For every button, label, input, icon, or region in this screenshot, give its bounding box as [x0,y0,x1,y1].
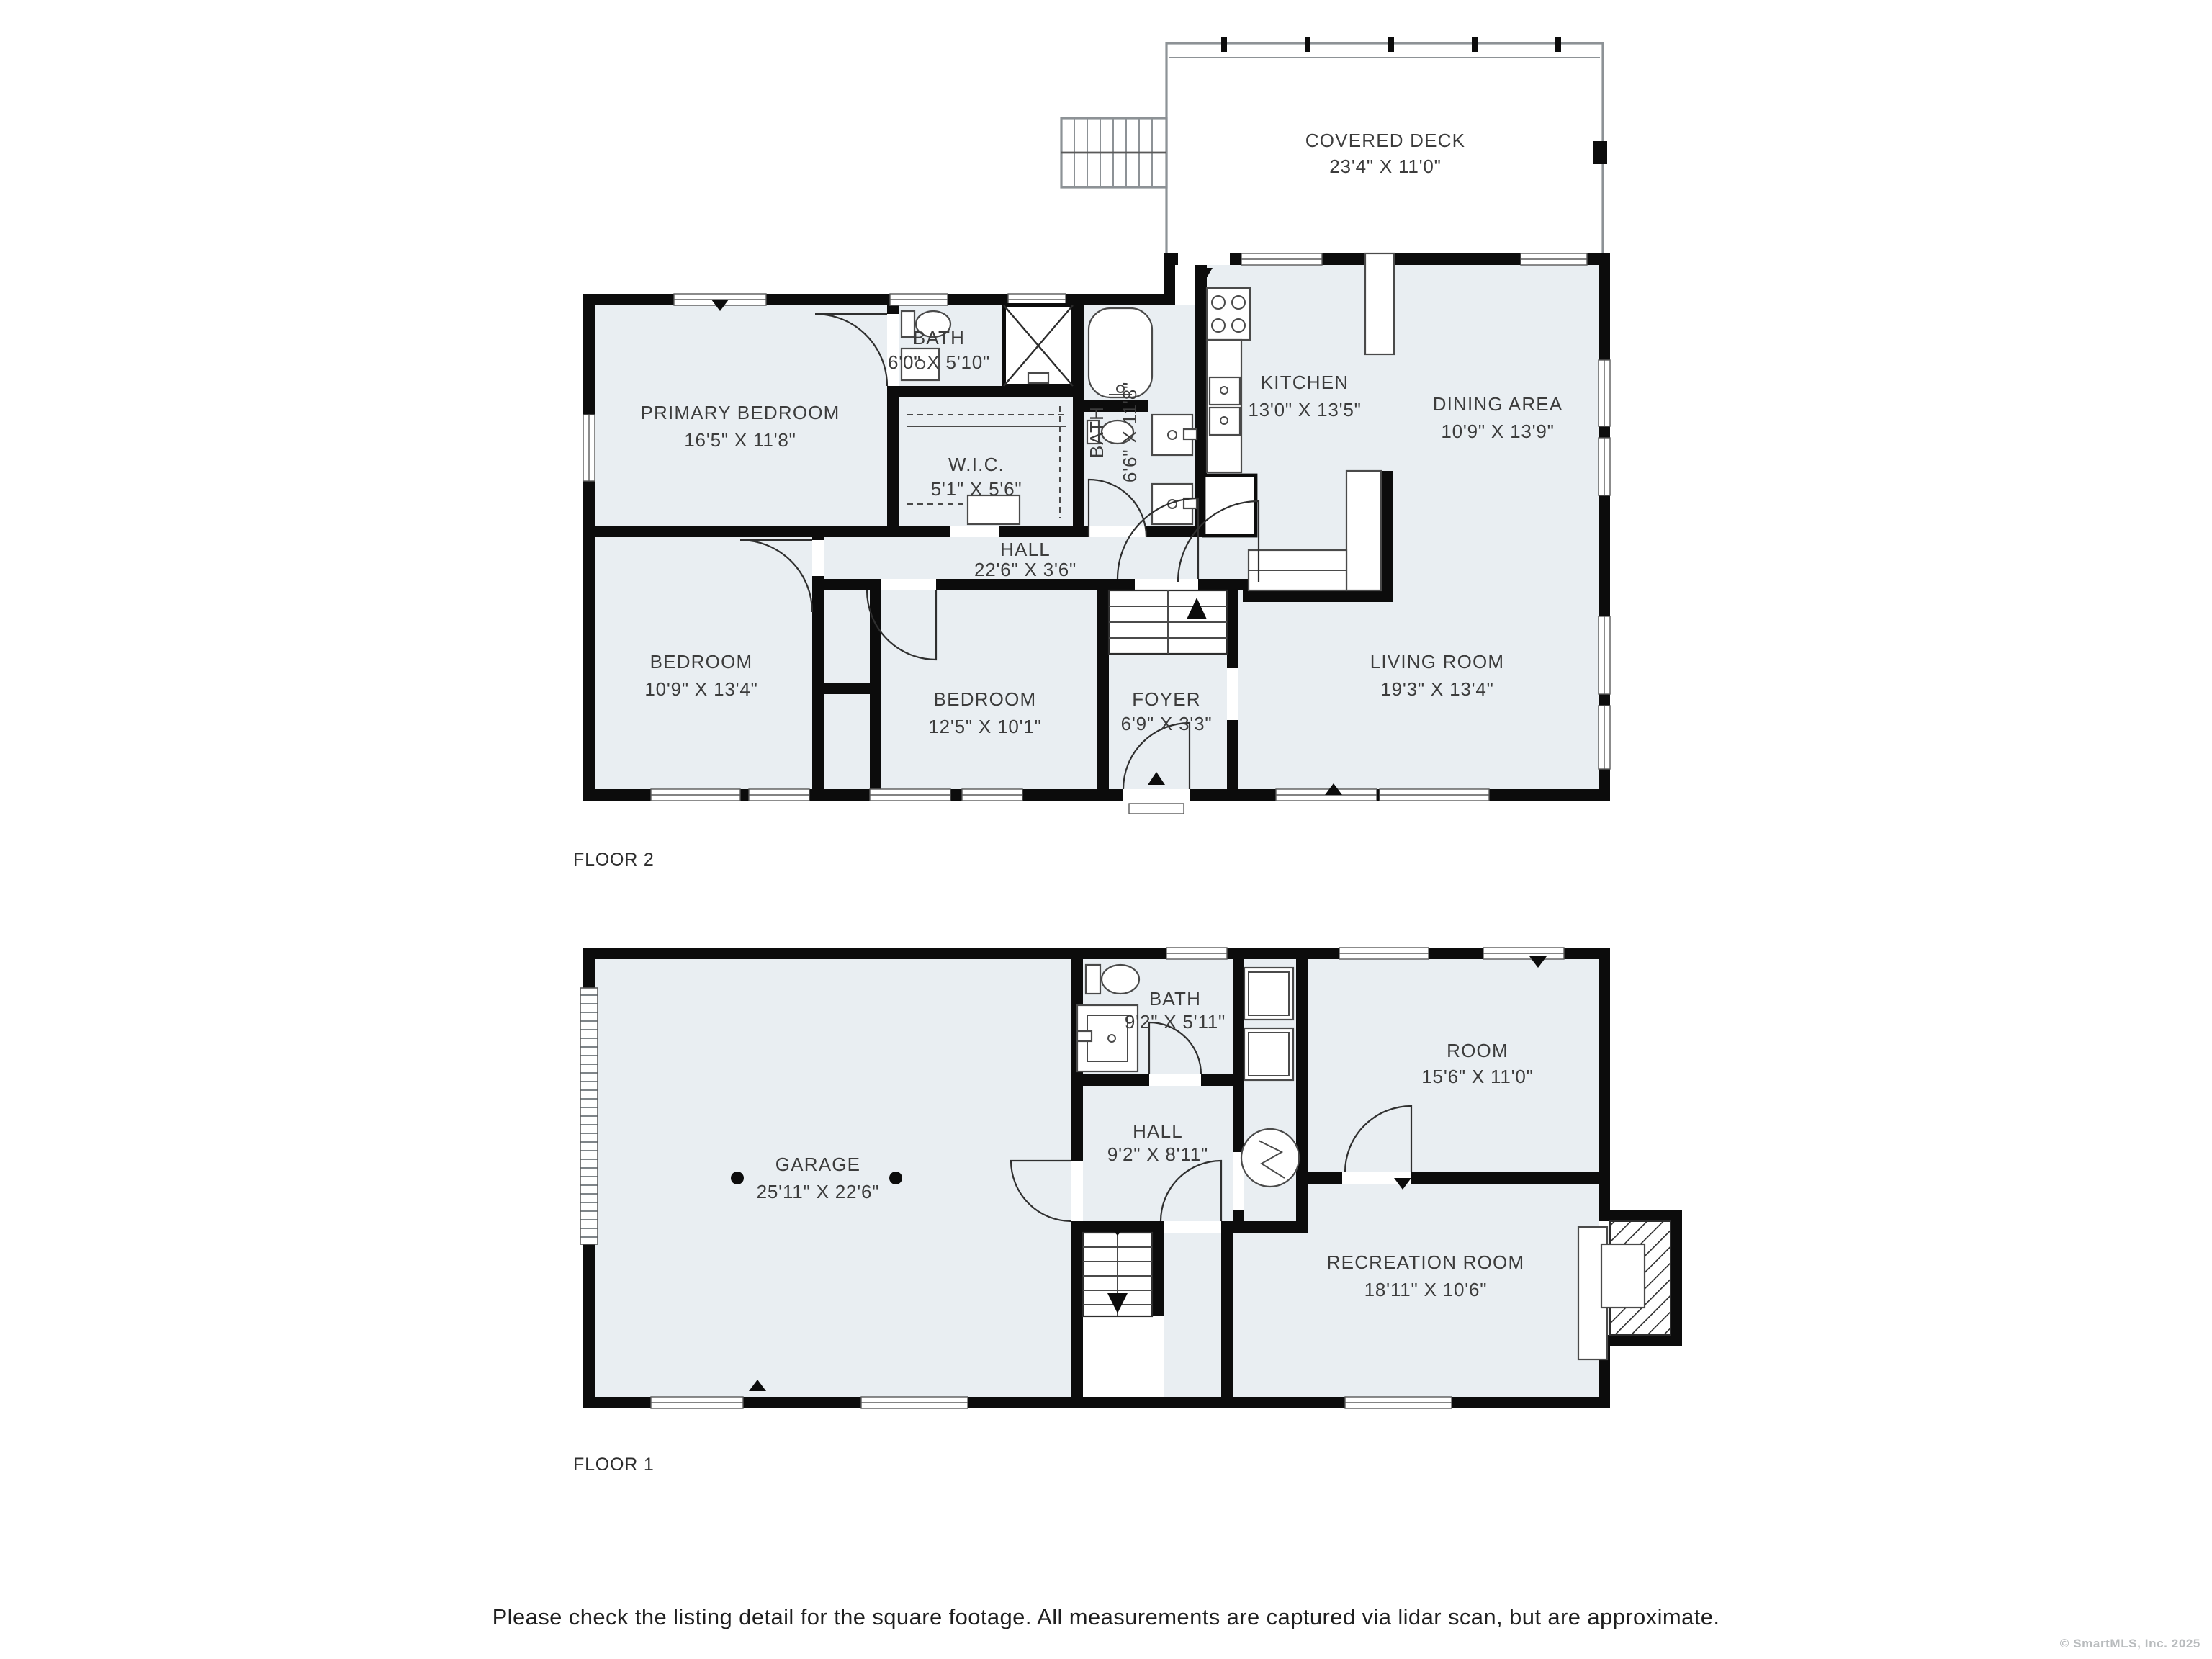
vanity-sink-icon [1152,484,1197,524]
disclaimer-text: Please check the listing detail for the … [493,1604,1720,1629]
svg-text:10'9" X 13'4": 10'9" X 13'4" [644,678,757,700]
covered-deck: COVERED DECK 23'4" X 11'0" [1061,37,1607,259]
copyright-text: © SmartMLS, Inc. 2025 [2060,1637,2200,1650]
toilet-icon [1086,965,1139,994]
svg-text:12'5" X 10'1": 12'5" X 10'1" [928,716,1041,737]
floor1-label: FLOOR 1 [573,1455,655,1475]
garage-door [580,988,598,1244]
svg-text:HALL: HALL [1000,539,1051,560]
deck-stairs [1061,118,1166,187]
svg-text:LIVING ROOM: LIVING ROOM [1370,651,1505,673]
svg-text:10'9" X 13'9": 10'9" X 13'9" [1441,421,1554,442]
svg-text:RECREATION ROOM: RECREATION ROOM [1327,1251,1525,1273]
svg-text:19'3" X 13'4": 19'3" X 13'4" [1380,678,1493,700]
svg-text:DINING AREA: DINING AREA [1433,393,1563,415]
floor2-label: FLOOR 2 [573,850,655,870]
floor-plan-drawing: COVERED DECK 23'4" X 11'0" [0,0,2212,1659]
svg-text:9'2" X 8'11": 9'2" X 8'11" [1107,1143,1208,1165]
shower-icon [1004,305,1073,386]
washer-icon [1244,968,1293,1020]
room-dims: 23'4" X 11'0" [1329,156,1441,177]
room-name: COVERED DECK [1305,130,1465,151]
svg-text:FOYER: FOYER [1132,688,1201,710]
svg-text:KITCHEN: KITCHEN [1261,372,1349,393]
svg-text:GARAGE: GARAGE [775,1154,860,1175]
svg-text:ROOM: ROOM [1447,1040,1509,1061]
stairs-up [1109,590,1227,654]
svg-text:16'5" X 11'8": 16'5" X 11'8" [684,429,796,451]
svg-text:22'6" X 3'6": 22'6" X 3'6" [974,559,1076,580]
svg-text:HALL: HALL [1133,1120,1183,1142]
svg-text:BATH: BATH [1149,988,1201,1010]
floor2-plan: COVERED DECK 23'4" X 11'0" [573,37,1610,870]
svg-text:W.I.C.: W.I.C. [948,454,1004,475]
svg-text:13'0" X 13'5": 13'0" X 13'5" [1248,399,1361,421]
pantry [1365,253,1394,354]
svg-text:25'11" X 22'6": 25'11" X 22'6" [757,1181,880,1202]
stove-icon [1207,288,1250,340]
svg-text:6'9" X 3'3": 6'9" X 3'3" [1121,713,1213,734]
floor1-plan: GARAGE 25'11" X 22'6" BATH 9'2" X 5'11" … [573,948,1682,1475]
svg-text:BEDROOM: BEDROOM [934,688,1037,710]
svg-text:BEDROOM: BEDROOM [650,651,753,673]
svg-text:18'11" X 10'6": 18'11" X 10'6" [1364,1279,1488,1300]
svg-text:15'6" X 11'0": 15'6" X 11'0" [1421,1066,1533,1087]
refrigerator-icon [1204,475,1256,536]
floor-plan-page: COVERED DECK 23'4" X 11'0" [0,0,2212,1659]
stairs-down [1083,1227,1152,1316]
svg-text:6'0" X 5'10": 6'0" X 5'10" [888,351,990,373]
svg-text:5'1" X 5'6": 5'1" X 5'6" [931,478,1022,500]
svg-text:BATH: BATH [1086,406,1107,458]
svg-text:BATH: BATH [913,327,965,349]
svg-text:6'6" X 11'8": 6'6" X 11'8" [1119,382,1141,482]
dryer-icon [1244,1028,1293,1080]
svg-text:PRIMARY BEDROOM: PRIMARY BEDROOM [640,402,840,423]
svg-text:9'2" X 5'11": 9'2" X 5'11" [1125,1011,1226,1033]
kitchen-counter [1207,340,1241,472]
vanity-sink-icon [1152,415,1197,455]
water-heater-icon [1241,1129,1299,1187]
